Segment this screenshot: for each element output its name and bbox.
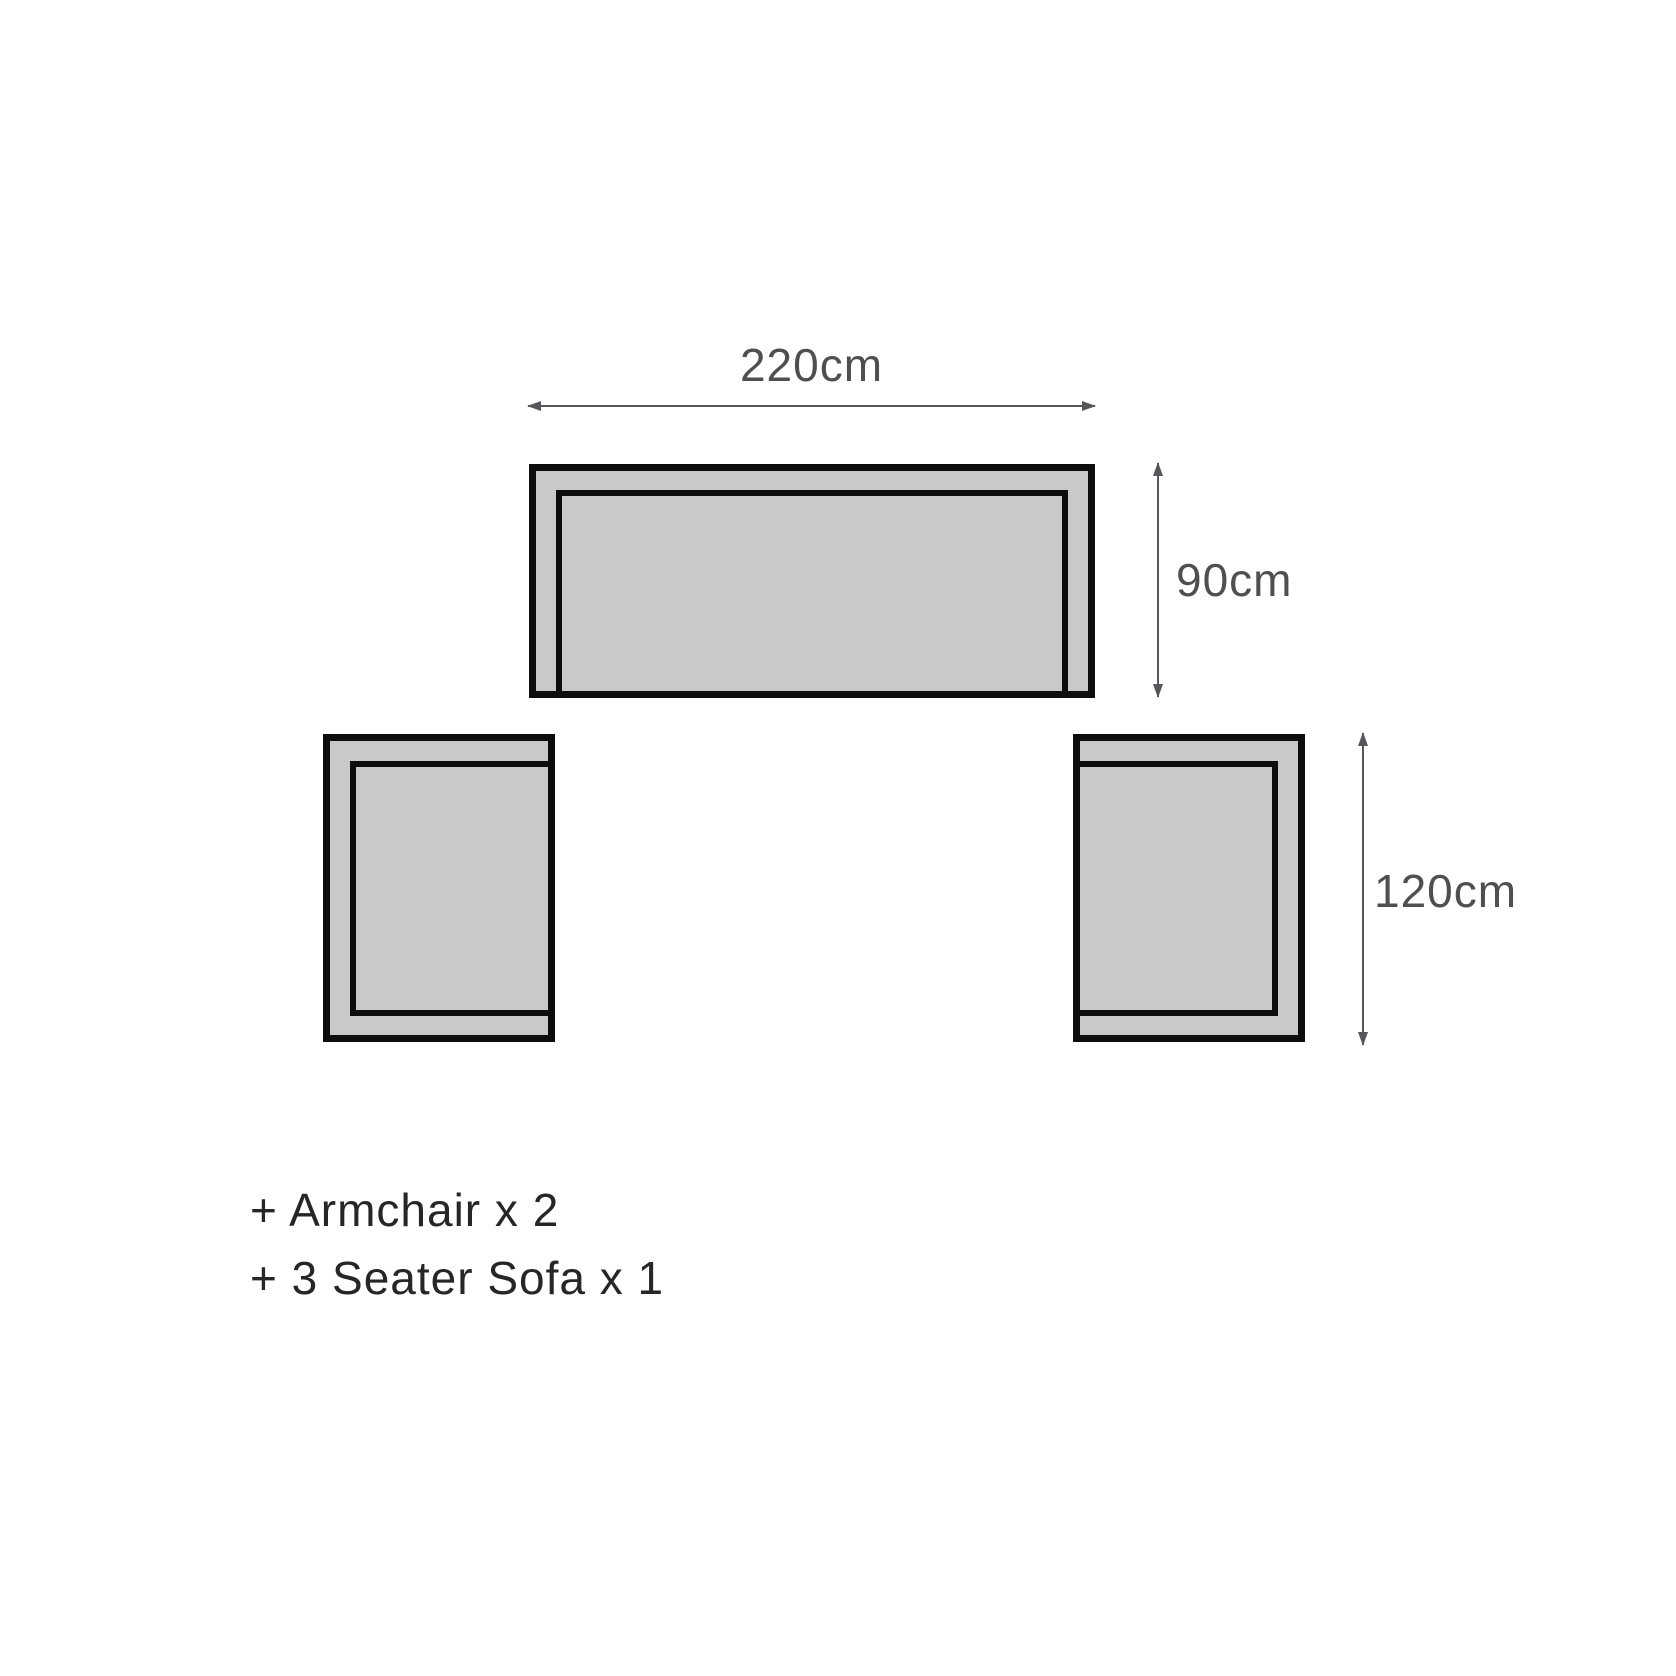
- set-contents-legend: + Armchair x 2 + 3 Seater Sofa x 1: [250, 1176, 664, 1312]
- armchair-right-seat: [1080, 761, 1278, 1016]
- sofa-depth-dimension-line: [1157, 463, 1159, 697]
- arrowhead-up-icon: [1153, 462, 1163, 476]
- sofa-depth-dimension-label: 90cm: [1176, 553, 1292, 607]
- legend-sofa-line: + 3 Seater Sofa x 1: [250, 1244, 664, 1312]
- sofa-outline: [529, 464, 1095, 698]
- arrowhead-up-icon: [1358, 732, 1368, 746]
- sofa-width-dimension-label: 220cm: [528, 338, 1095, 392]
- armchair-right-outline: [1073, 734, 1305, 1042]
- sofa-width-dimension-line: [528, 405, 1095, 407]
- arrowhead-left-icon: [527, 401, 541, 411]
- arrowhead-right-icon: [1082, 401, 1096, 411]
- arrowhead-down-icon: [1153, 684, 1163, 698]
- legend-armchair-line: + Armchair x 2: [250, 1176, 664, 1244]
- arrowhead-down-icon: [1358, 1032, 1368, 1046]
- armchair-depth-dimension-label: 120cm: [1374, 864, 1517, 918]
- sofa-seat: [556, 490, 1068, 691]
- armchair-left-outline: [323, 734, 555, 1042]
- furniture-dimensions-diagram: 220cm 90cm 120cm + Armchair x 2 + 3 Seat…: [0, 0, 1676, 1676]
- armchair-depth-dimension-line: [1362, 733, 1364, 1045]
- armchair-left-seat: [350, 761, 548, 1016]
